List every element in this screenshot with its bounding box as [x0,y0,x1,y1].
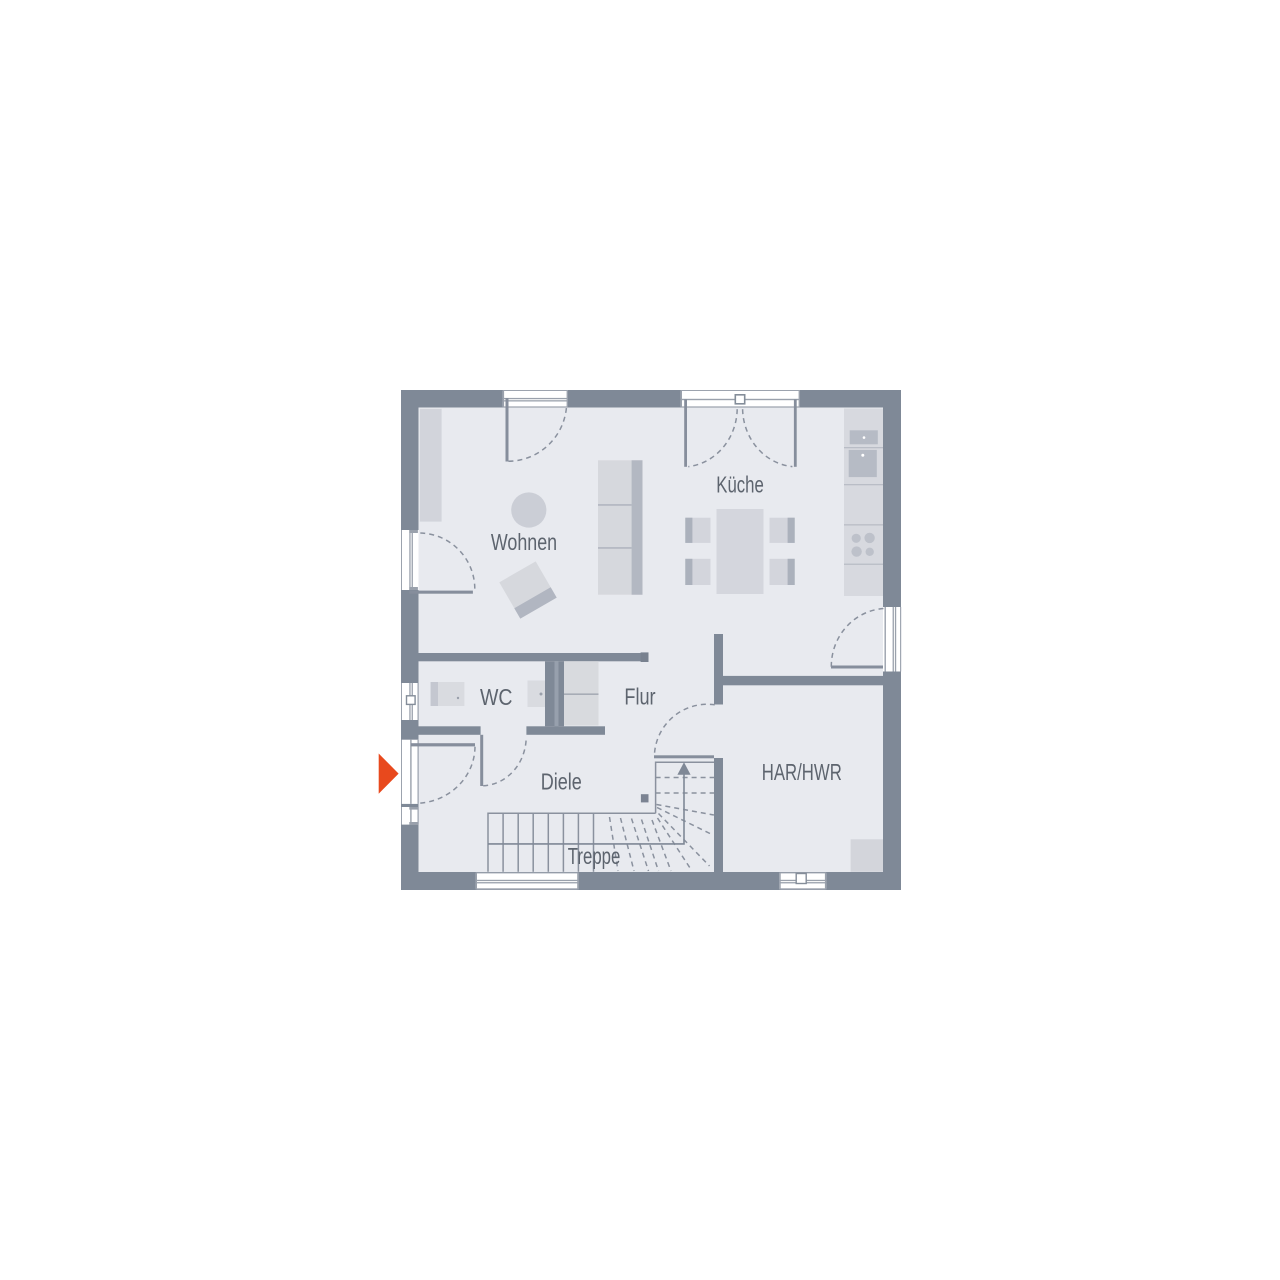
svg-text:Treppe: Treppe [568,843,621,869]
svg-text:Wohnen: Wohnen [491,529,557,555]
svg-text:Flur: Flur [624,683,655,709]
svg-text:HAR/HWR: HAR/HWR [762,759,842,785]
svg-text:WC: WC [480,684,513,710]
svg-text:Küche: Küche [716,472,764,498]
svg-text:Diele: Diele [541,769,582,795]
